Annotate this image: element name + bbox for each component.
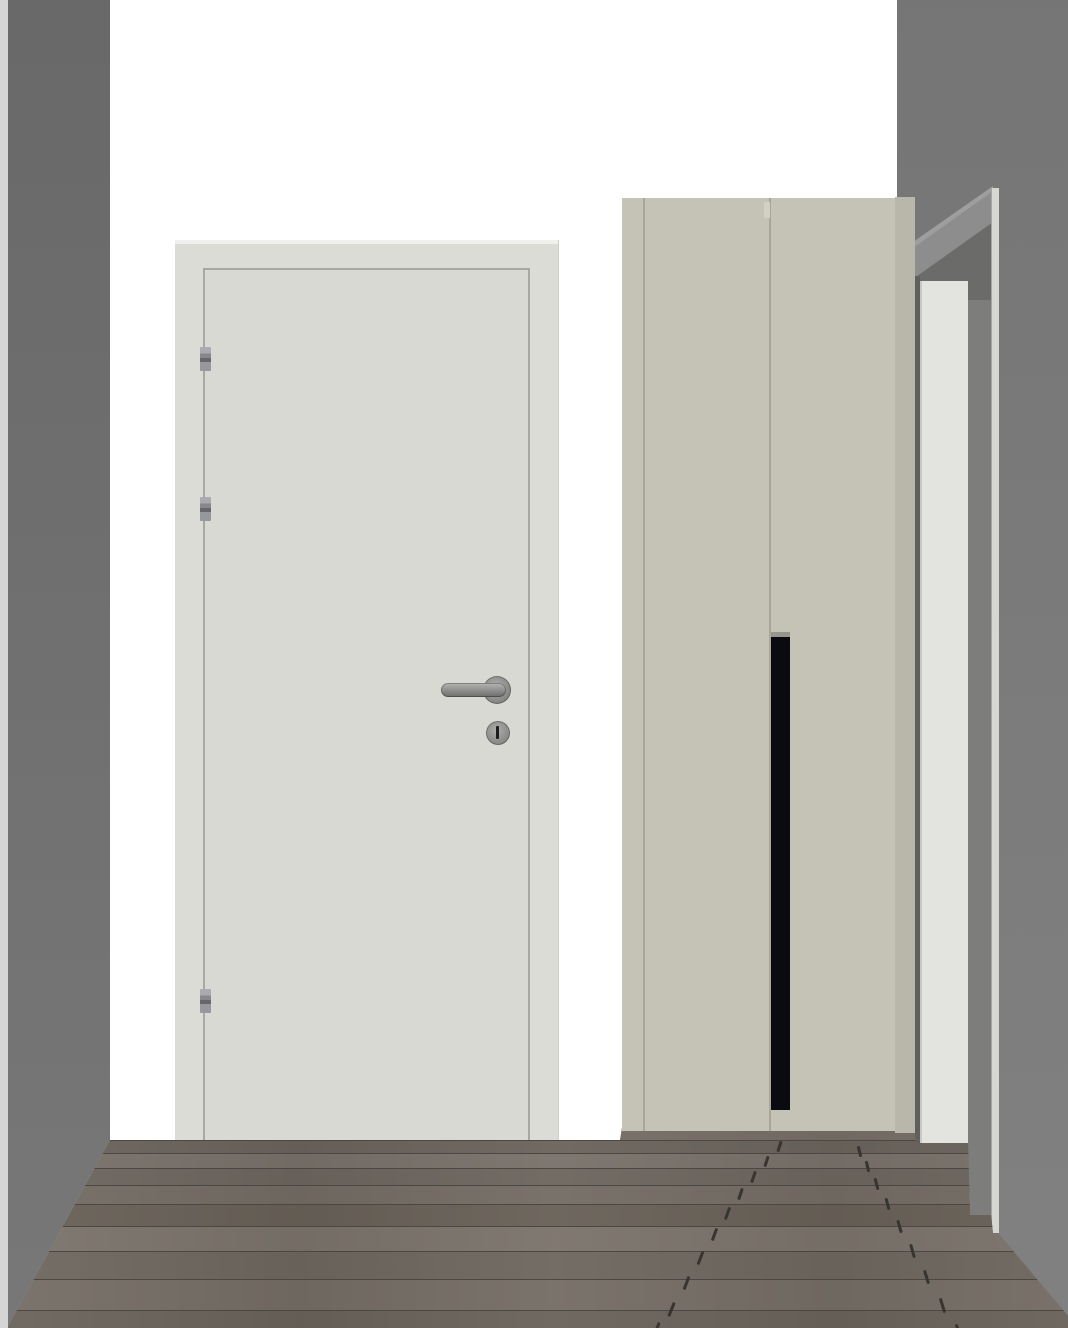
plank-row <box>0 1310 1068 1328</box>
wardrobe-front <box>622 198 895 1131</box>
door-frame-highlight <box>175 240 558 244</box>
door-hinge-middle <box>200 497 211 521</box>
plank-row <box>0 1251 1068 1279</box>
plank-row <box>0 1226 1068 1251</box>
door-hinge-top <box>200 347 211 371</box>
wardrobe <box>622 197 915 1133</box>
door-hinge-bottom <box>200 989 211 1013</box>
door-keyhole <box>486 721 510 745</box>
door-leaf <box>203 268 530 1140</box>
wardrobe-seam-notch <box>764 202 770 218</box>
doorway-frame <box>991 188 999 1233</box>
interior-door <box>175 240 559 1140</box>
plank-row <box>0 1279 1068 1310</box>
doorway-jamb <box>968 300 991 1215</box>
plank-row <box>0 1204 1068 1226</box>
render-canvas <box>0 0 1068 1328</box>
door-lever-handle <box>441 683 506 697</box>
wardrobe-side-panel <box>895 197 915 1133</box>
wardrobe-left-seam <box>643 198 645 1131</box>
wardrobe-handle <box>771 637 790 1110</box>
left-wall-edge <box>0 0 8 1328</box>
keyhole-slot <box>496 726 499 739</box>
plank-row <box>0 1168 1068 1185</box>
plank-row <box>0 1153 1068 1168</box>
doorway-door <box>920 281 968 1143</box>
plank-row <box>0 1140 1068 1153</box>
plank-row <box>0 1185 1068 1204</box>
